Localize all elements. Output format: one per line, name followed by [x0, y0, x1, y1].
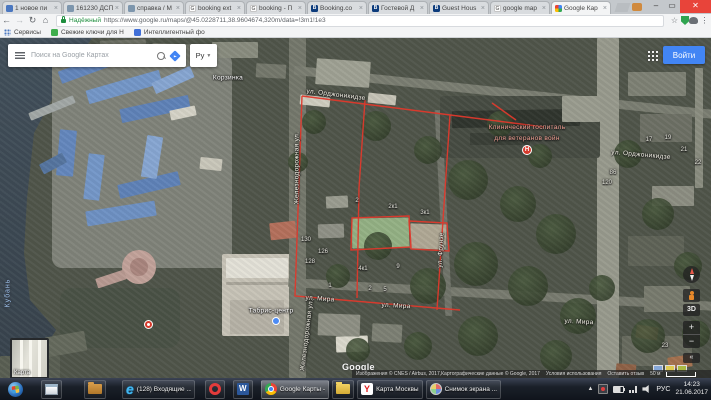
tree-canopy	[346, 338, 370, 362]
house-number: 126	[318, 249, 328, 255]
clock-time: 14:23	[684, 381, 700, 388]
tab-close-icon[interactable]: ×	[481, 5, 485, 12]
street-label: Железнодорожная ул.	[294, 132, 301, 204]
start-icon	[8, 382, 23, 397]
tabris-marker-icon[interactable]	[272, 317, 280, 325]
g-favicon-icon: G	[189, 5, 196, 12]
blue-badge-icon	[134, 29, 141, 36]
taskbar-item-yandex[interactable]: YКарта Москвы	[357, 380, 423, 399]
tree-canopy	[589, 275, 615, 301]
network-signal-icon[interactable]	[629, 385, 637, 393]
zoom-controls: + −	[683, 321, 700, 348]
taskbar-items: e(128) Входящие ...WGoogle Карты -YКарта…	[4, 378, 501, 400]
directions-icon[interactable]	[169, 50, 180, 61]
bookmark-item[interactable]: Сервисы	[4, 29, 41, 36]
house-number: 4к1	[358, 266, 367, 272]
map-controls: 3D + − «	[683, 266, 701, 363]
tab-close-icon[interactable]: ×	[176, 5, 180, 12]
taskbar-item-label: Google Карты -	[280, 386, 325, 393]
menu-hamburger-icon[interactable]	[15, 52, 25, 59]
clock-date: 21.06.2017	[675, 389, 708, 396]
house-number: 2	[368, 286, 371, 292]
browser-tab[interactable]: BBooking.co×	[307, 1, 367, 14]
yandex-icon: Y	[361, 383, 373, 395]
tree-canopy	[364, 232, 392, 260]
hospital-icon[interactable]: H	[522, 145, 532, 155]
volume-icon[interactable]	[642, 385, 651, 393]
house-number: 17	[646, 137, 653, 143]
taskbar-item-label: (128) Входящие ...	[137, 386, 191, 393]
house-number: 1	[328, 283, 331, 289]
b-favicon-icon: B	[433, 5, 440, 12]
keyboard-language[interactable]: РУС	[656, 386, 670, 393]
tab-label: Гостевой Д	[381, 5, 418, 12]
house-number: 23	[662, 343, 669, 349]
tab-label: booking - П	[259, 5, 296, 12]
shield-extension-icon[interactable]	[681, 16, 689, 25]
house-number: 2к1	[388, 204, 397, 210]
browser-tab[interactable]: BГостевой Д×	[368, 1, 428, 14]
taskbar-item-explorer[interactable]	[41, 380, 62, 399]
feedback-link[interactable]: Оставить отзыв	[607, 371, 644, 377]
tab-strip: 1 новое пи×161230 ДСП×справка / М×Gbooki…	[0, 0, 711, 14]
b-favicon-icon: B	[372, 5, 379, 12]
tree-canopy	[631, 319, 665, 353]
browser-tab[interactable]: справка / М×	[124, 1, 184, 14]
b-favicon-icon: B	[311, 5, 318, 12]
chrome-icon	[265, 383, 277, 395]
house-number: 130	[301, 237, 311, 243]
tree-canopy	[500, 186, 536, 222]
lock-icon	[61, 19, 66, 23]
mail-favicon-icon	[6, 5, 13, 12]
security-label: Надёжный	[69, 17, 101, 24]
signin-button[interactable]: Войти	[663, 46, 705, 64]
taskbar-item-paint[interactable]: Снимок экрана ...	[426, 380, 501, 399]
taskbar-item-start[interactable]	[4, 380, 27, 399]
poi-label: Табрис-центр	[249, 308, 294, 315]
search-input[interactable]: Поиск на Google Картах	[8, 44, 186, 67]
tab-close-icon[interactable]: ×	[603, 5, 607, 12]
folder-icon	[88, 384, 102, 394]
street-label: ул. Мира	[381, 302, 411, 311]
tab-close-icon[interactable]: ×	[542, 5, 546, 12]
terms-link[interactable]: Условия использования	[546, 371, 602, 377]
tree-canopy	[454, 242, 498, 286]
tab-label: google map	[503, 5, 540, 12]
tree-canopy	[560, 298, 596, 334]
tab-label: Booking.co	[320, 5, 357, 12]
house-number: 21	[681, 147, 688, 153]
tab-close-icon[interactable]: ×	[298, 5, 302, 12]
minimize-button[interactable]: –	[648, 0, 664, 13]
doc-favicon-icon	[67, 5, 74, 12]
map-canvas[interactable]: ул. Орджоникидзеул. ОрджоникидзеЖелезнод…	[0, 38, 711, 378]
tree-canopy	[458, 316, 498, 356]
collapse-button[interactable]: «	[683, 353, 700, 363]
house-number: 19	[665, 135, 672, 141]
poi-label: Корзинка	[213, 75, 243, 82]
forward-icon[interactable]: →	[13, 15, 26, 26]
tabs: 1 новое пи×161230 ДСП×справка / М×Gbooki…	[2, 0, 629, 14]
compass-icon[interactable]	[683, 266, 700, 283]
pegman-icon[interactable]	[683, 289, 700, 302]
cloud-extension-icon[interactable]	[689, 17, 698, 24]
back-icon[interactable]: ←	[0, 15, 13, 26]
new-tab-button[interactable]	[615, 3, 631, 12]
tree-canopy	[642, 198, 674, 230]
house-number: 22	[695, 160, 702, 166]
opera-icon	[209, 383, 221, 395]
g-favicon-icon: G	[494, 5, 501, 12]
browser-tab[interactable]: 161230 ДСП×	[63, 1, 123, 14]
browser-tab[interactable]: Google Кар×	[551, 1, 611, 14]
bookmarks-bar: СервисыСвежие ключи для НИнтеллигентный …	[0, 27, 711, 38]
browser-tab[interactable]: Gbooking - П×	[246, 1, 306, 14]
search-placeholder: Поиск на Google Картах	[31, 52, 151, 59]
maximize-button[interactable]: ▭	[664, 0, 680, 13]
zoom-in-button[interactable]: +	[683, 321, 700, 335]
taskbar-item-label: Снимок экрана ...	[445, 386, 497, 393]
house-number: 5	[383, 287, 386, 293]
tree-canopy	[404, 332, 432, 360]
doc-favicon-icon	[128, 5, 135, 12]
search-icon[interactable]	[157, 52, 165, 60]
house-number: 3к1	[420, 210, 429, 216]
house-number: 86	[610, 170, 617, 176]
tree-canopy	[410, 268, 446, 304]
map-type-switcher[interactable]: Карта	[10, 338, 49, 378]
chevron-down-icon: ▼	[206, 53, 211, 59]
tree-canopy	[540, 340, 572, 372]
tab-close-icon[interactable]: ×	[420, 5, 424, 12]
profile-badge-icon[interactable]	[632, 3, 642, 11]
street-label: ул. Мира	[564, 318, 594, 327]
bookmark-item[interactable]: Интеллигентный фо	[134, 29, 205, 36]
paint-icon	[430, 383, 442, 395]
browser-tab[interactable]: BGuest Hous×	[429, 1, 489, 14]
g-favicon-icon: G	[250, 5, 257, 12]
taskbar-item-folder-yellow[interactable]	[332, 380, 354, 399]
bookmark-label: Интеллигентный фо	[144, 29, 205, 36]
browser-chrome: 1 новое пи×161230 ДСП×справка / М×Gbooki…	[0, 0, 711, 38]
bookmark-item[interactable]: Свежие ключи для Н	[51, 29, 124, 36]
tab-close-icon[interactable]: ×	[359, 5, 363, 12]
taskbar-item-word[interactable]: W	[233, 380, 253, 399]
google-apps-grid-icon[interactable]	[647, 50, 658, 61]
taskbar-item-folder[interactable]	[84, 380, 106, 399]
menu-dots-icon[interactable]: ⋮	[698, 16, 711, 25]
taskbar: e(128) Входящие ...WGoogle Карты -YКарта…	[0, 378, 711, 400]
system-tray: ▲ РУС 14:23 21.06.2017	[587, 378, 708, 400]
tray-expand-icon[interactable]: ▲	[587, 386, 593, 392]
bookmark-star-icon[interactable]: ☆	[668, 16, 681, 25]
taskbar-item-label: Карта Москвы	[376, 386, 419, 393]
tab-label: справка / М	[137, 5, 174, 12]
tab-close-icon[interactable]: ×	[115, 5, 119, 12]
house-number: 120	[602, 180, 612, 186]
explorer-icon	[45, 384, 58, 395]
close-button[interactable]: ✕	[680, 0, 711, 13]
folder-yellow-icon	[336, 384, 350, 394]
map-type-label: Карта	[14, 370, 30, 376]
river-label: Кубань	[5, 279, 12, 308]
browser-tab[interactable]: Gbooking ext×	[185, 1, 245, 14]
word-icon: W	[237, 383, 249, 395]
clock[interactable]: 14:23 21.06.2017	[675, 381, 708, 397]
scale-bar	[666, 372, 696, 377]
tab-label: 161230 ДСП	[76, 5, 113, 12]
language-button[interactable]: Ру ▼	[190, 44, 217, 67]
battery-icon[interactable]	[613, 386, 624, 393]
screen: 1 новое пи×161230 ДСП×справка / М×Gbooki…	[0, 0, 711, 400]
refresh-icon[interactable]: ↻	[26, 15, 39, 26]
tree-canopy	[508, 266, 548, 306]
address-bar: ← → ↻ ⌂ Надёжный https://www.google.ru/m…	[0, 14, 711, 27]
taskbar-item-ie[interactable]: e(128) Входящие ...	[122, 380, 195, 399]
bookmark-label: Сервисы	[14, 29, 41, 36]
zoom-out-button[interactable]: −	[683, 335, 700, 348]
tree-canopy	[302, 110, 326, 134]
tab-label: booking ext	[198, 5, 235, 12]
apps-grid-icon	[4, 29, 11, 36]
url-text: https://www.google.ru/maps/@45.0228711,3…	[104, 17, 326, 24]
house-number: 2	[355, 198, 358, 204]
window-controls: – ▭ ✕	[632, 0, 711, 13]
tab-close-icon[interactable]: ×	[54, 5, 58, 12]
tab-label: Guest Hous	[442, 5, 479, 12]
tab-label: Google Кар	[564, 5, 601, 12]
antivirus-tray-icon[interactable]	[598, 384, 608, 394]
tree-canopy	[448, 160, 488, 200]
tree-canopy	[414, 136, 442, 164]
tab-label: 1 новое пи	[15, 5, 52, 12]
browser-tab[interactable]: Ggoogle map×	[490, 1, 550, 14]
ie-icon: e	[126, 382, 134, 396]
bookmark-label: Свежие ключи для Н	[61, 29, 124, 36]
poi-label: Клинический госпиталь для ветеранов войн	[489, 122, 566, 144]
house-number: 128	[305, 259, 315, 265]
tree-canopy	[361, 111, 391, 141]
3d-button[interactable]: 3D	[683, 304, 700, 316]
browser-tab[interactable]: 1 новое пи×	[2, 1, 62, 14]
taskbar-item-opera[interactable]	[205, 380, 225, 399]
url-field[interactable]: Надёжный https://www.google.ru/maps/@45.…	[56, 15, 664, 27]
maps-favicon-icon	[555, 5, 562, 12]
taskbar-item-chrome[interactable]: Google Карты -	[261, 380, 329, 399]
house-number: 9	[396, 264, 399, 270]
tree-canopy	[536, 214, 576, 254]
home-icon[interactable]: ⌂	[39, 15, 52, 26]
tab-close-icon[interactable]: ×	[237, 5, 241, 12]
imagery-credit: Изображения © CNES / Airbus, 2017,Картог…	[356, 371, 540, 377]
scale-label: 50 м	[650, 371, 660, 377]
green-badge-icon	[51, 29, 58, 36]
language-label: Ру	[196, 51, 205, 60]
attribution-bar: Изображения © CNES / Airbus, 2017,Картог…	[352, 370, 711, 378]
shop-marker-icon[interactable]	[144, 320, 153, 329]
